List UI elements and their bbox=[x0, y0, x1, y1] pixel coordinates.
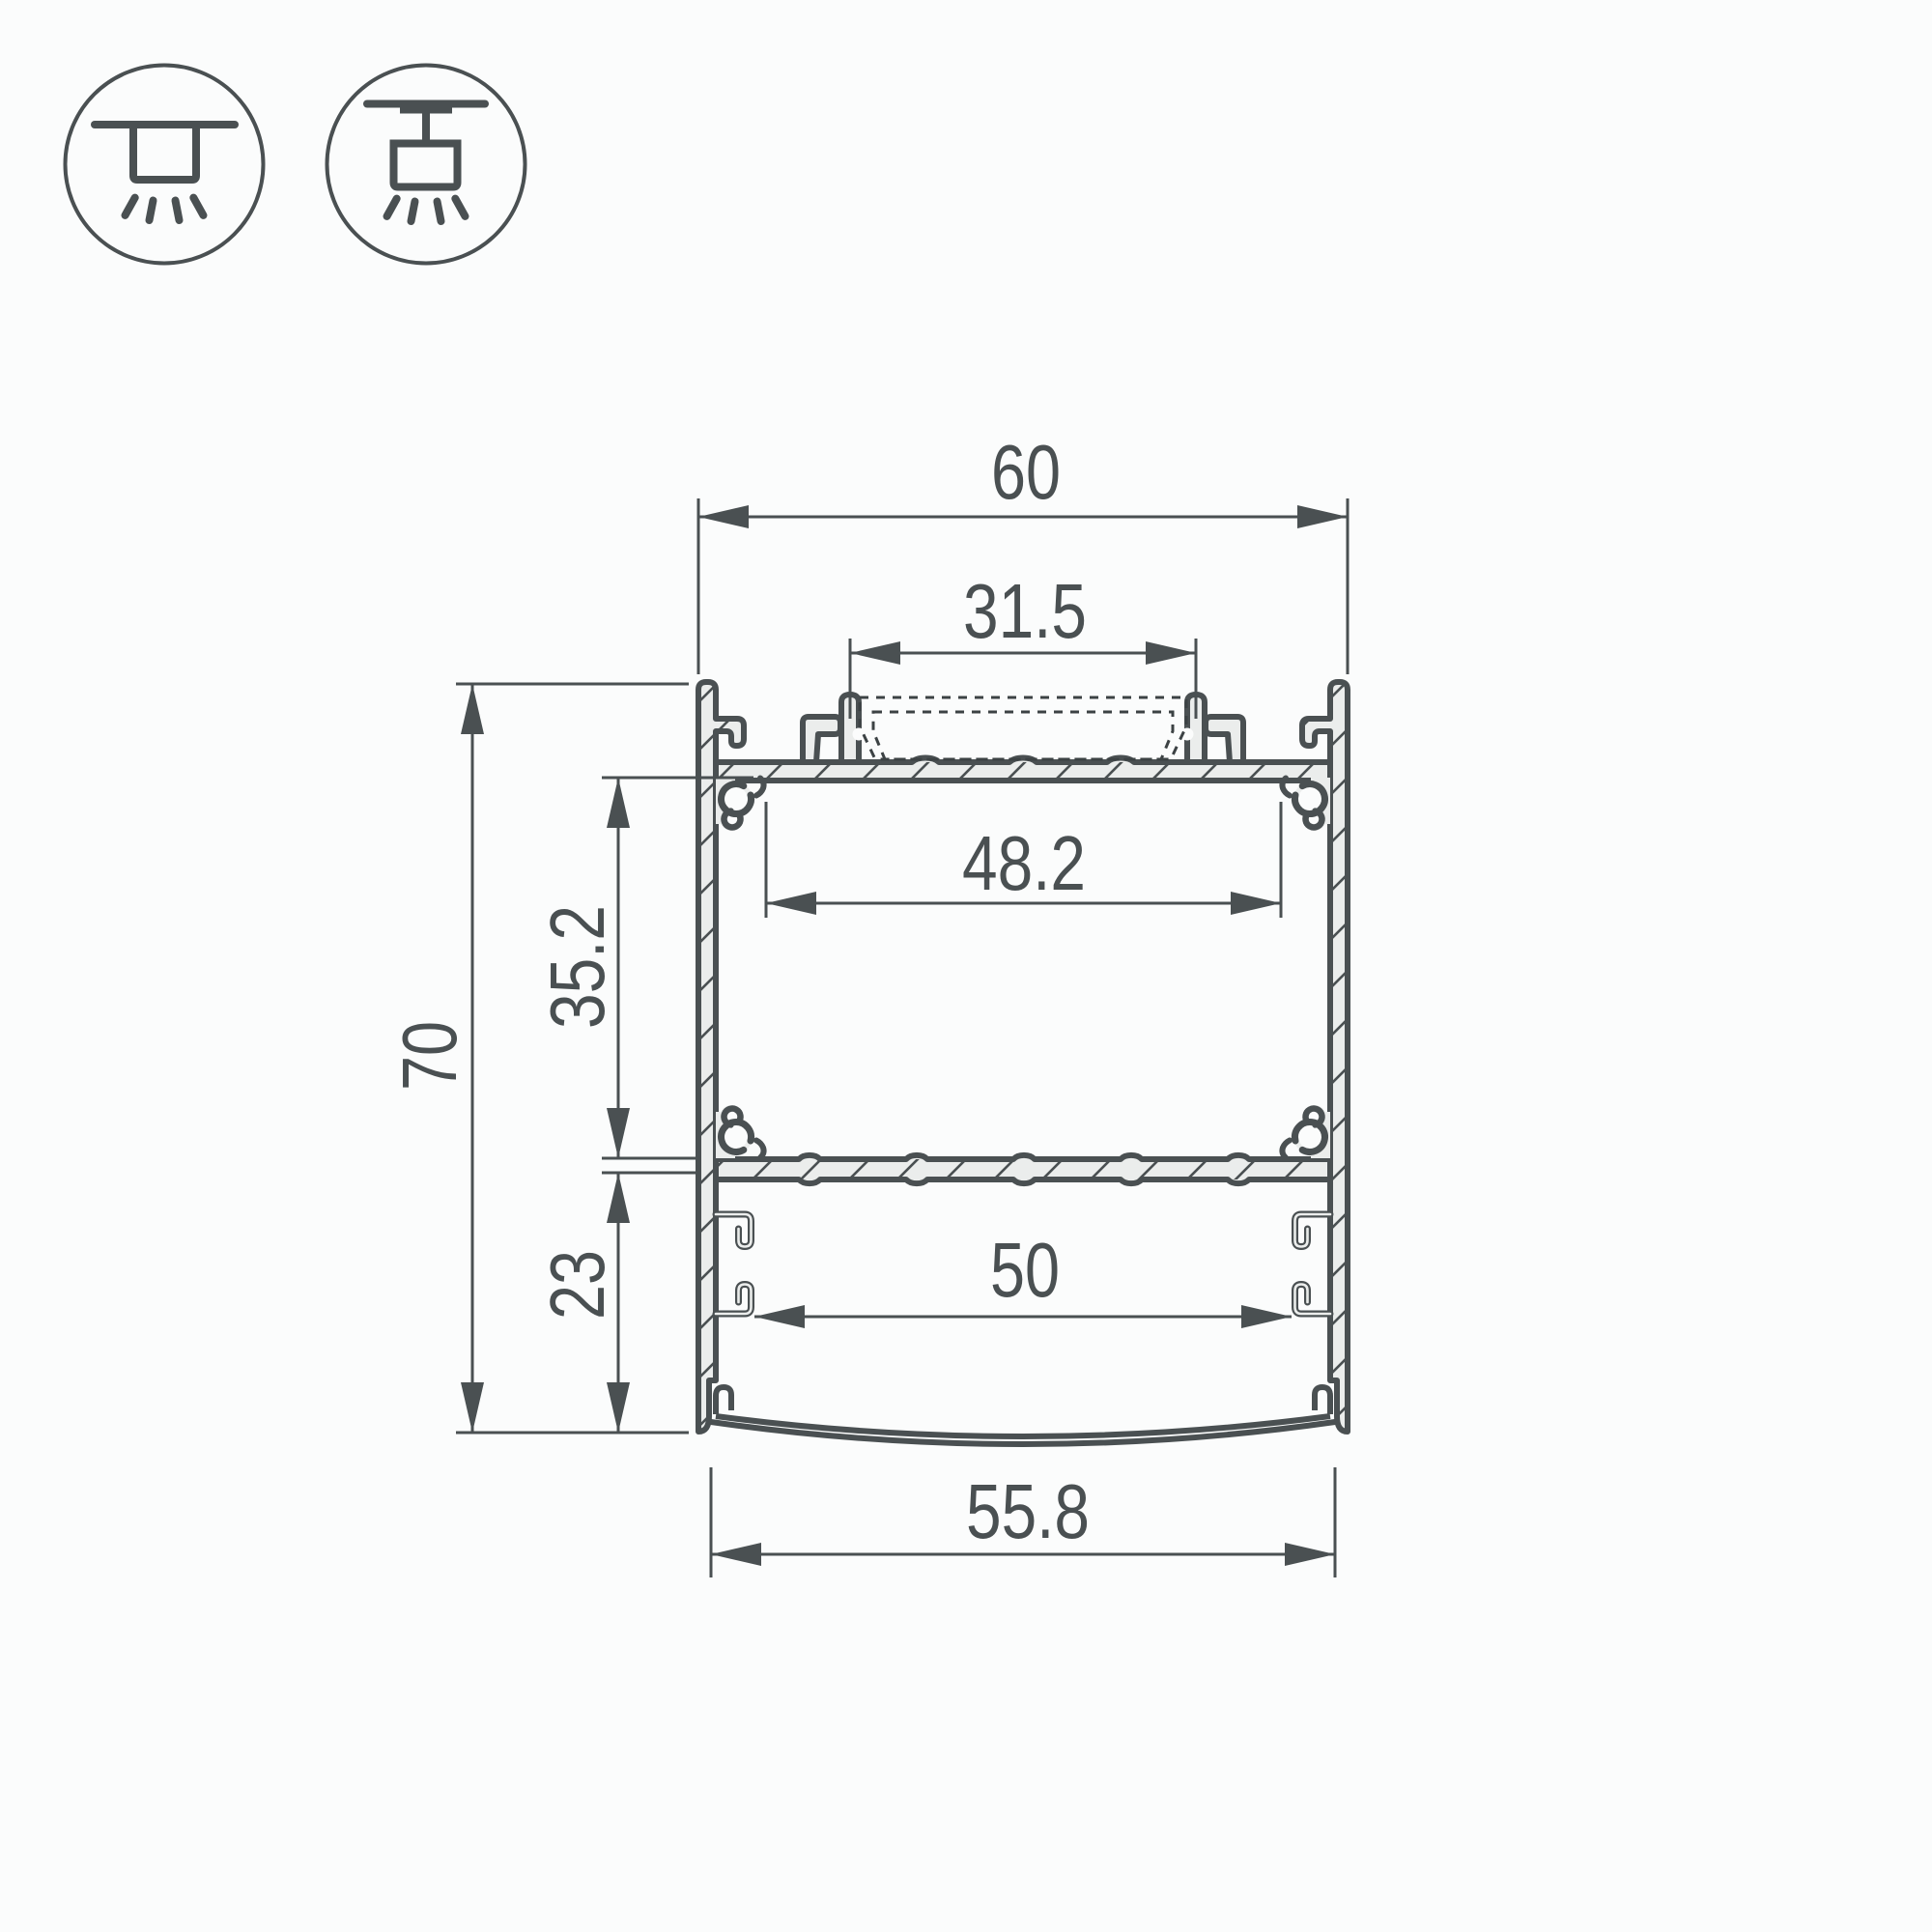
svg-text:50: 50 bbox=[990, 1227, 1060, 1313]
svg-text:35.2: 35.2 bbox=[534, 905, 620, 1029]
svg-text:48.2: 48.2 bbox=[962, 820, 1086, 906]
svg-text:55.8: 55.8 bbox=[966, 1468, 1090, 1554]
svg-text:70: 70 bbox=[386, 1021, 472, 1091]
svg-text:31.5: 31.5 bbox=[963, 568, 1087, 654]
svg-text:60: 60 bbox=[991, 429, 1061, 515]
svg-text:23: 23 bbox=[534, 1250, 620, 1320]
